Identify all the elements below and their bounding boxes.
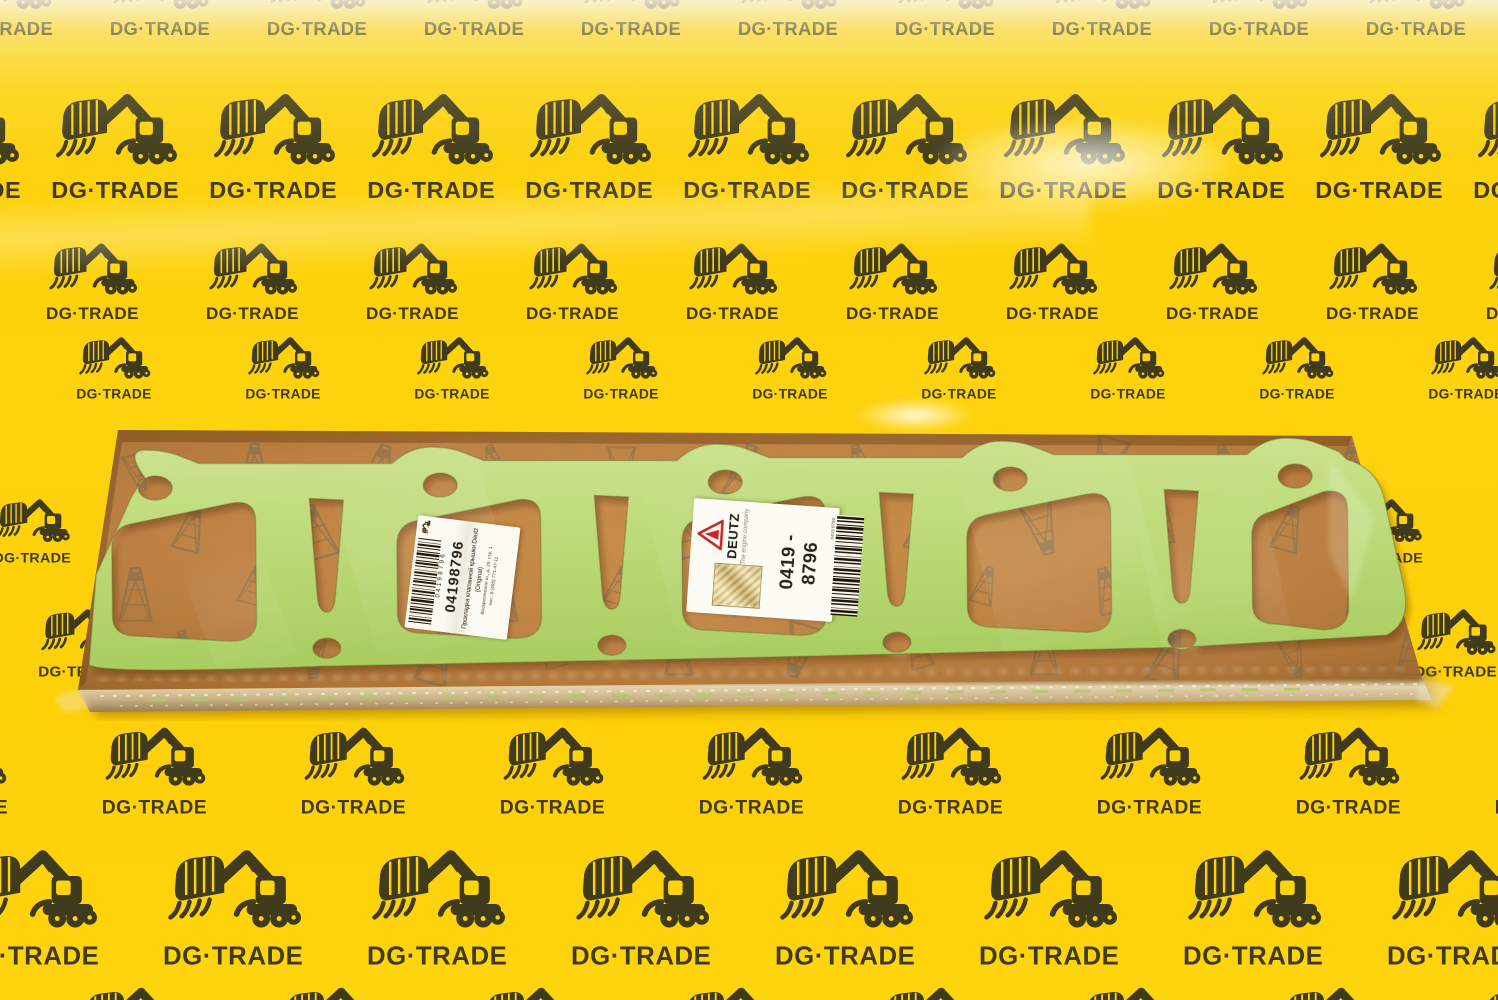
dg-trade-watermark: DG·TRADE: [846, 247, 939, 323]
dg-trade-watermark: DG·TRADE: [209, 99, 337, 203]
dg-trade-watermark: DG·TRADE: [1006, 247, 1099, 323]
dg-trade-watermark: DG·TRADE: [775, 856, 915, 971]
dg-trade-logo-text: DG·TRADE: [1315, 177, 1443, 203]
dg-trade-watermark: DG·TRADE: [1387, 856, 1498, 971]
dg-trade-watermark: DG·TRADE: [979, 856, 1119, 971]
dg-trade-watermark: DG·TRADE: [0, 99, 21, 203]
dg-trade-watermark: DG·TRADE: [78, 992, 185, 1000]
dg-trade-logo-text: DG·TRADE: [1052, 18, 1152, 39]
dg-trade-logo-text: DG·TRADE: [301, 797, 406, 818]
dg-trade-logo-text: DG·TRADE: [500, 797, 605, 818]
dg-trade-watermark: DG·TRADE: [267, 0, 367, 39]
dg-trade-watermark: DG·TRADE: [526, 247, 619, 323]
dg-trade-watermark: DG·TRADE: [999, 99, 1127, 203]
dg-trade-watermark: DG·TRADE: [102, 732, 207, 818]
dg-trade-watermark: DG·TRADE: [110, 0, 210, 39]
dg-trade-logo-text: DG·TRADE: [51, 177, 179, 203]
hologram-sticker: [712, 563, 763, 609]
dg-trade-watermark: DG·TRADE: [1326, 247, 1419, 323]
dg-trade-logo-text: DG·TRADE: [367, 942, 507, 970]
dg-trade-watermark: DG·TRADE: [1486, 247, 1498, 323]
dg-trade-logo-text: DG·TRADE: [206, 304, 299, 323]
dg-trade-logo-text: DG·TRADE: [841, 177, 969, 203]
dg-trade-logo-text: DG·TRADE: [424, 18, 524, 39]
dg-trade-logo-text: DG·TRADE: [1209, 18, 1309, 39]
dg-trade-logo-text: DG·TRADE: [1326, 304, 1419, 323]
dg-trade-logo-text: DG·TRADE: [581, 18, 681, 39]
dg-trade-logo-text: DG·TRADE: [0, 942, 99, 970]
dg-trade-watermark: DG·TRADE: [46, 247, 139, 323]
dg-trade-watermark: DG·TRADE: [367, 99, 495, 203]
dg-trade-logo-text: DG·TRADE: [999, 177, 1127, 203]
photo-stage: DG·TRADEDG·TRADEDG·TRADEDG·TRADEDG·TRADE…: [0, 0, 1498, 1000]
dg-trade-logo-text: DG·TRADE: [46, 304, 139, 323]
dg-trade-logo-text: DG·TRADE: [163, 942, 303, 970]
dg-trade-watermark: DG·TRADE: [500, 732, 605, 818]
dg-trade-watermark: DG·TRADE: [1166, 247, 1259, 323]
dg-trade-watermark: DG·TRADE: [1183, 856, 1323, 971]
dg-trade-watermark: DG·TRADE: [683, 99, 811, 203]
dg-trade-logo-text: DG·TRADE: [1006, 304, 1099, 323]
dg-trade-watermark: DG·TRADE: [525, 99, 653, 203]
dg-trade-watermark: DG·TRADE: [424, 0, 524, 39]
dg-trade-logo-text: DG·TRADE: [366, 304, 459, 323]
dg-trade-watermark: DG·TRADE: [678, 992, 785, 1000]
dg-trade-logo-text: DG·TRADE: [1473, 177, 1498, 203]
deutz-label: DEUTZ The engine company 0419 - 8796 041…: [686, 498, 840, 622]
dg-trade-watermark: DG·TRADE: [581, 0, 681, 39]
dg-trade-logo-text: DG·TRADE: [0, 177, 21, 203]
dg-trade-watermark: DG·TRADE: [571, 856, 711, 971]
dg-trade-logo-text: DG·TRADE: [738, 18, 838, 39]
dg-trade-watermark: DG·TRADE: [0, 732, 8, 818]
dg-trade-watermark: DG·TRADE: [738, 0, 838, 39]
dg-trade-watermark: DG·TRADE: [206, 247, 299, 323]
dg-trade-logo-text: DG·TRADE: [1486, 304, 1498, 323]
dg-trade-logo-text: DG·TRADE: [1097, 797, 1202, 818]
dg-trade-logo-text: DG·TRADE: [110, 18, 210, 39]
dg-trade-watermark: DG·TRADE: [0, 856, 99, 971]
dg-trade-logo-text: DG·TRADE: [525, 177, 653, 203]
dg-trade-logo-text: DG·TRADE: [895, 18, 995, 39]
dg-trade-logo-text: DG·TRADE: [1296, 797, 1401, 818]
dg-trade-logo-text: DG·TRADE: [686, 304, 779, 323]
dg-trade-logo-text: DG·TRADE: [699, 797, 804, 818]
dg-trade-watermark: DG·TRADE: [278, 992, 385, 1000]
dg-trade-watermark: DG·TRADE: [301, 732, 406, 818]
dg-trade-watermark: DG·TRADE: [1078, 992, 1185, 1000]
dg-trade-watermark: DG·TRADE: [1157, 99, 1285, 203]
dg-trade-watermark: DG·TRADE: [1052, 0, 1152, 39]
deutz-logo-icon: [696, 516, 726, 552]
dg-trade-watermark: DG·TRADE: [1097, 732, 1202, 818]
deutz-tagline: The engine company: [741, 509, 751, 565]
dg-trade-watermark: DG·TRADE: [367, 856, 507, 971]
dg-trade-watermark: DG·TRADE: [1315, 99, 1443, 203]
dg-trade-logo-text: DG·TRADE: [0, 797, 8, 818]
dg-trade-watermark: DG·TRADE: [163, 856, 303, 971]
dg-trade-logo-text: DG·TRADE: [571, 942, 711, 970]
dg-trade-watermark: DG·TRADE: [841, 99, 969, 203]
dg-trade-watermark: DG·TRADE: [699, 732, 804, 818]
dg-trade-logo-text: DG·TRADE: [898, 797, 1003, 818]
dg-trade-logo-text: DG·TRADE: [683, 177, 811, 203]
dg-trade-watermark: DG·TRADE: [895, 0, 995, 39]
dg-trade-logo-text: DG·TRADE: [775, 942, 915, 970]
dg-trade-logo-text: DG·TRADE: [846, 304, 939, 323]
dg-trade-logo-text: DG·TRADE: [102, 797, 207, 818]
dg-trade-logo-text: DG·TRADE: [979, 942, 1119, 970]
dg-trade-logo-text: DG·TRADE: [1166, 304, 1259, 323]
dg-trade-watermark: DG·TRADE: [686, 247, 779, 323]
dg-trade-watermark: DG·TRADE: [1473, 99, 1498, 203]
dg-trade-logo-text: DG·TRADE: [526, 304, 619, 323]
dg-trade-logo-text: DG·TRADE: [1183, 942, 1323, 970]
dg-trade-watermark: DG·TRADE: [0, 0, 53, 39]
deutz-part-number: 0419 - 8796: [773, 510, 824, 615]
dg-trade-watermark: DG·TRADE: [1478, 992, 1498, 1000]
dg-trade-logo-text: DG·TRADE: [1387, 942, 1498, 970]
dg-trade-watermark: DG·TRADE: [366, 247, 459, 323]
vendor-barcode-label: 04198796 04198796 Прокладка клапанной кр…: [404, 515, 520, 640]
dg-trade-watermark: DG·TRADE: [51, 99, 179, 203]
dg-trade-logo-text: DG·TRADE: [209, 177, 337, 203]
dg-trade-watermark: DG·TRADE: [878, 992, 985, 1000]
dg-trade-logo-text: DG·TRADE: [0, 18, 53, 39]
dg-trade-logo-text: DG·TRADE: [267, 18, 367, 39]
dg-trade-logo-text: DG·TRADE: [1366, 18, 1466, 39]
dg-trade-watermark: DG·TRADE: [898, 732, 1003, 818]
dg-trade-watermark: DG·TRADE: [478, 992, 585, 1000]
dg-trade-watermark: DG·TRADE: [1209, 0, 1309, 39]
dg-trade-logo-text: DG·TRADE: [1157, 177, 1285, 203]
deutz-wordmark: DEUTZ: [724, 512, 742, 559]
dg-trade-logo-text: DG·TRADE: [367, 177, 495, 203]
dg-trade-watermark: DG·TRADE: [1366, 0, 1466, 39]
dg-trade-watermark: DG·TRADE: [1296, 732, 1401, 818]
vendor-mini-excavator-icon: [420, 520, 433, 535]
dg-trade-watermark: DG·TRADE: [1278, 992, 1385, 1000]
